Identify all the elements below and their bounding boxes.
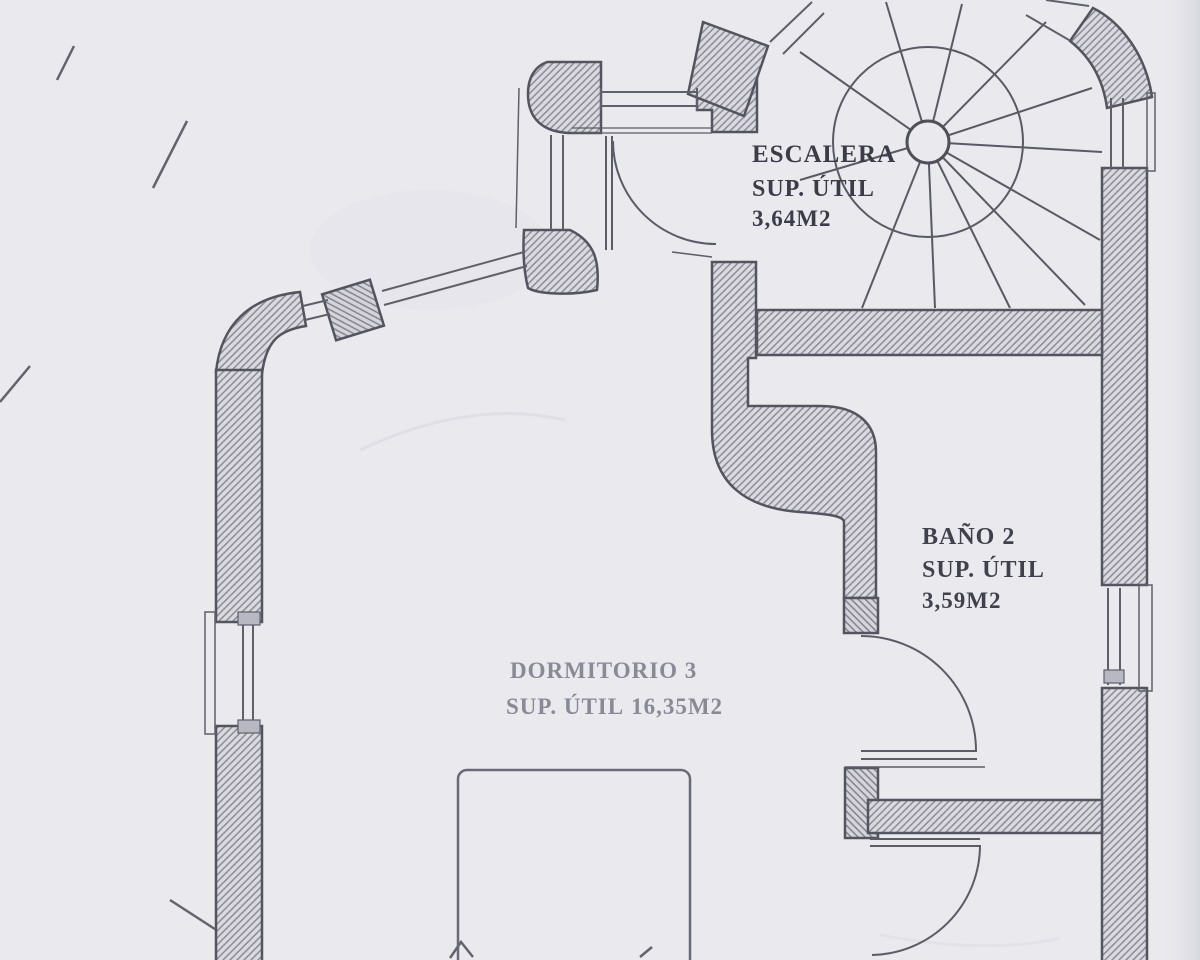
- wall-bano-south: [868, 800, 1102, 833]
- wall-top-left-corner: [528, 62, 601, 133]
- escalera-area-value: 3,64M2: [752, 206, 831, 231]
- wall-right-lower: [1102, 688, 1147, 960]
- wall-right-upper: [1102, 168, 1147, 585]
- wall-end-cap-upper: [844, 598, 878, 633]
- dormitorio3-area-line: SUP. ÚTIL16,35M2: [506, 694, 723, 719]
- escalera-label: ESCALERA: [752, 141, 896, 168]
- bano2-area-label: SUP. ÚTIL: [922, 557, 1045, 583]
- wall-bano-north: [757, 310, 1102, 355]
- wall-left-lower: [216, 726, 262, 960]
- floor-plan-drawing: ESCALERA SUP. ÚTIL 3,64M2 BAÑO 2 SUP. ÚT…: [0, 0, 1200, 960]
- escalera-area-label: SUP. ÚTIL: [752, 176, 875, 202]
- bano2-area-value: 3,59M2: [922, 588, 1001, 613]
- wall-left-upper: [216, 370, 262, 622]
- dormitorio3-label: DORMITORIO 3: [510, 658, 697, 683]
- bano2-label: BAÑO 2: [922, 524, 1015, 550]
- scanned-floor-plan: ESCALERA SUP. ÚTIL 3,64M2 BAÑO 2 SUP. ÚT…: [0, 0, 1200, 960]
- stair-center-post: [907, 121, 949, 163]
